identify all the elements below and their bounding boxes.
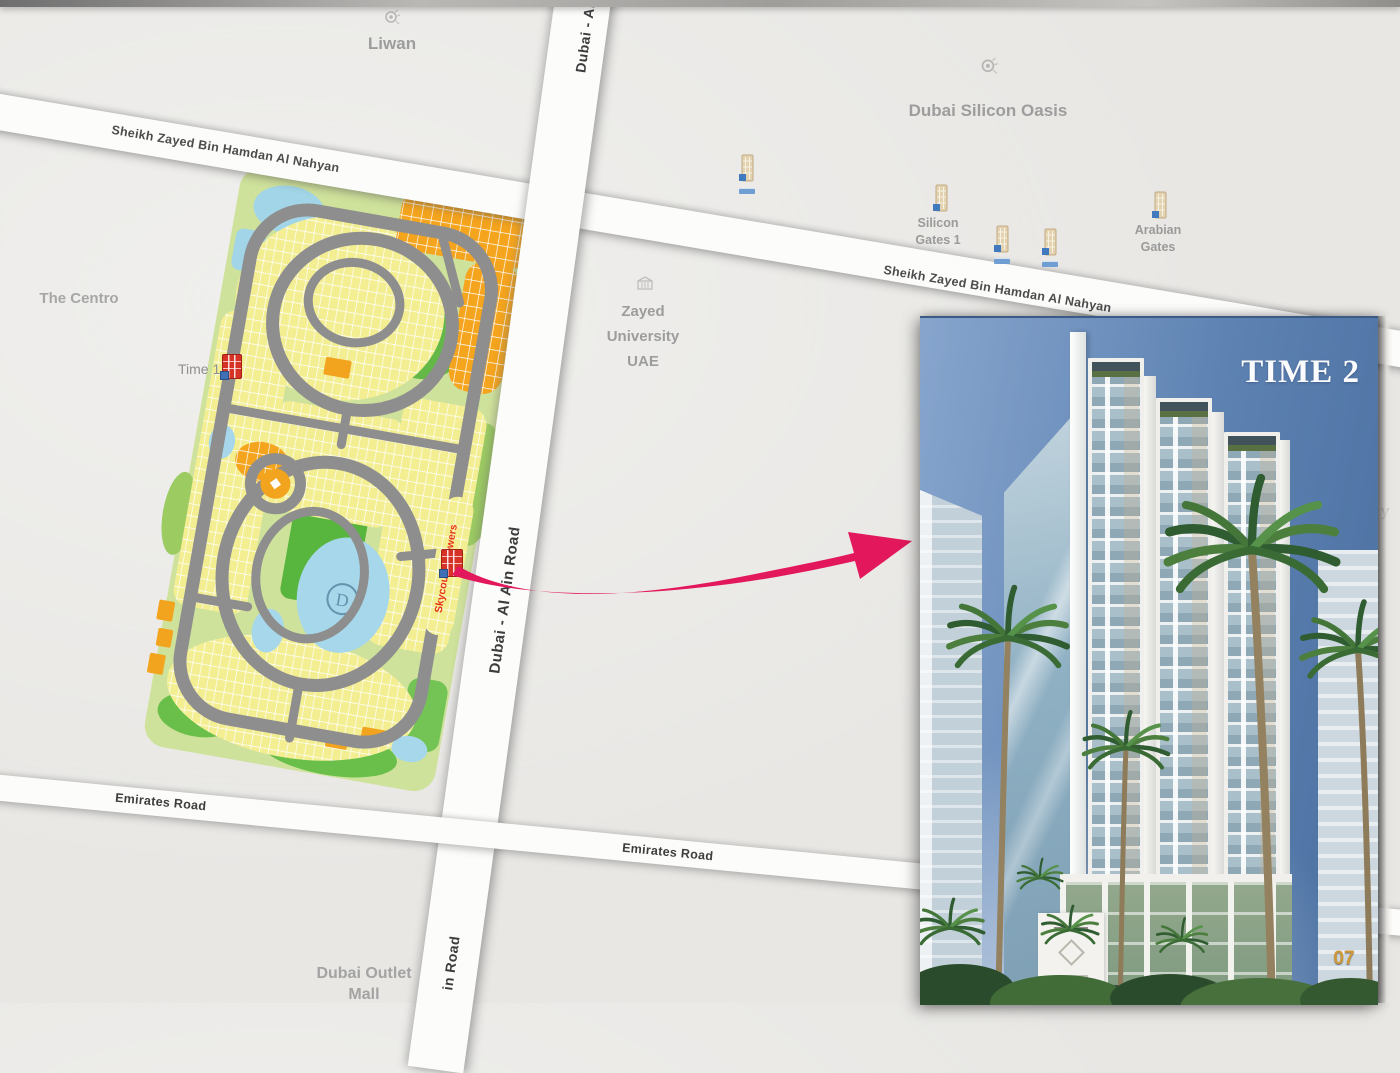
tower-marker-icon (992, 224, 1012, 256)
tower-marker-icon (931, 183, 951, 215)
page-top-edge (0, 0, 1400, 7)
label-time-1: Time 1 (178, 361, 220, 377)
location-arrow (430, 510, 930, 620)
tower-marker-caption (1042, 261, 1058, 267)
liwan-poi-icon (382, 8, 402, 30)
label-outlet-line1: Dubai Outlet (316, 963, 411, 984)
tower-marker-icon (1150, 190, 1170, 222)
tower-marker-caption (739, 188, 755, 194)
label-dubai-silicon-oasis: Dubai Silicon Oasis (909, 101, 1068, 121)
label-silicon-gates-1: Silicon Gates 1 (915, 215, 960, 249)
label-zayed-university: Zayed University UAE (607, 299, 680, 374)
palm-trees (920, 318, 1378, 1005)
label-arabian-gates: Arabian Gates (1135, 222, 1182, 256)
page-number: 07 (1324, 948, 1364, 970)
label-zayed-line3: UAE (607, 349, 680, 374)
dso-poi-icon (978, 56, 1000, 80)
time-1-marker-icon (222, 354, 242, 379)
tower-marker-icon (1040, 227, 1060, 259)
label-zayed-line1: Zayed (607, 299, 680, 324)
label-arabian-gates-line1: Arabian (1135, 222, 1182, 239)
brochure-location-page: { "colors": { "arrow": "#e2175c", "road"… (0, 0, 1400, 1003)
label-arabian-gates-line2: Gates (1135, 239, 1182, 256)
label-dubai-outlet-mall: Dubai Outlet Mall (316, 963, 411, 1005)
university-icon (637, 276, 653, 290)
label-silicon-gates-line2: Gates 1 (915, 232, 960, 249)
time-2-building-render: TIME 2 07 (920, 316, 1378, 1005)
inset-shadow-edge (1378, 316, 1392, 1003)
tower-marker-icon (737, 153, 757, 185)
inset-title: TIME 2 (1241, 354, 1360, 391)
label-outlet-line2: Mall (316, 984, 411, 1005)
label-liwan: Liwan (368, 34, 416, 54)
label-silicon-gates-line1: Silicon (915, 215, 960, 232)
label-zayed-line2: University (607, 324, 680, 349)
label-the-centro: The Centro (39, 290, 118, 307)
tower-marker-caption (994, 258, 1010, 264)
